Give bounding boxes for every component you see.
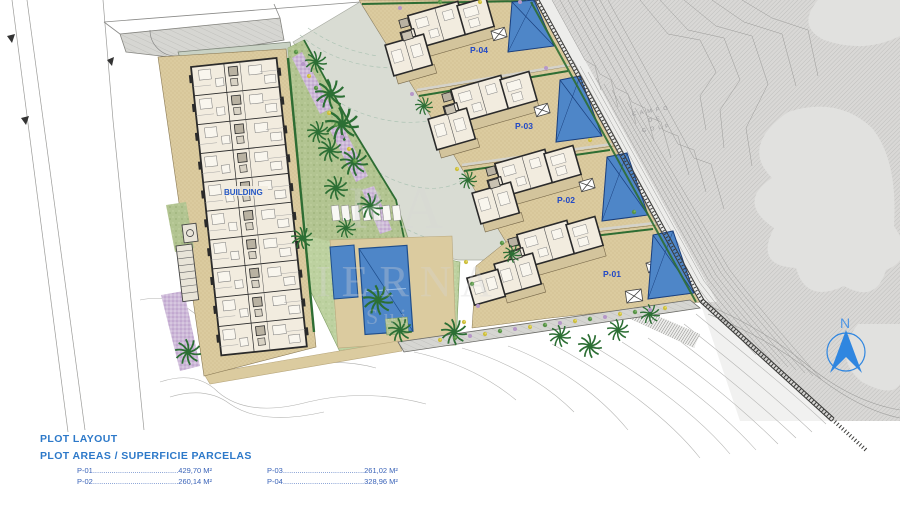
svg-text:PLOT LAYOUT: PLOT LAYOUT	[40, 433, 118, 445]
svg-text:PLOT AREAS / SUPERFICIE PARCEL: PLOT AREAS / SUPERFICIE PARCELAS	[40, 450, 252, 462]
svg-text:P-01..........................: P-01....................................…	[77, 466, 213, 475]
svg-text:P-02: P-02	[557, 195, 575, 205]
svg-text:P-01: P-01	[603, 269, 621, 279]
svg-text:P-04..........................: P-04....................................…	[267, 477, 398, 486]
svg-text:I E R N A: I E R N A	[316, 257, 492, 306]
svg-text:BUILDING: BUILDING	[224, 188, 263, 197]
svg-text:P-02..........................: P-02....................................…	[77, 477, 213, 486]
svg-text:N: N	[840, 315, 850, 331]
svg-text:P-03..........................: P-03....................................…	[267, 466, 398, 475]
svg-text:R A: R A	[348, 175, 443, 241]
svg-text:P-03: P-03	[515, 121, 533, 131]
svg-text:P-04: P-04	[470, 45, 488, 55]
svg-text:S u i: S u i	[366, 304, 406, 329]
